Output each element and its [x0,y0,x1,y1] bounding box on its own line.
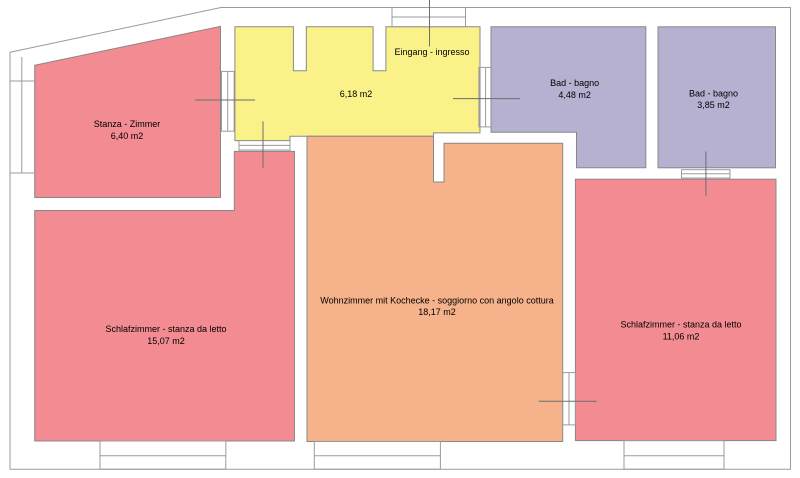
svg-text:Schlafzimmer - stanza da letto: Schlafzimmer - stanza da letto [620,320,741,330]
svg-text:15,07 m2: 15,07 m2 [147,336,185,346]
svg-text:6,40 m2: 6,40 m2 [111,131,144,141]
svg-text:Stanza - Zimmer: Stanza - Zimmer [94,119,161,129]
svg-text:Bad - bagno: Bad - bagno [550,78,599,88]
svg-text:Schlafzimmer - stanza da letto: Schlafzimmer - stanza da letto [105,324,226,334]
svg-text:Bad - bagno: Bad - bagno [689,89,738,99]
svg-text:Eingang - ingresso: Eingang - ingresso [394,47,469,57]
svg-text:3,85 m2: 3,85 m2 [697,100,730,110]
svg-text:11,06 m2: 11,06 m2 [663,332,700,342]
svg-text:18,17 m2: 18,17 m2 [418,307,456,317]
svg-text:4,48 m2: 4,48 m2 [558,90,591,100]
svg-text:Wohnzimmer mit Kochecke - sogg: Wohnzimmer mit Kochecke - soggiorno con … [320,296,553,306]
svg-text:6,18 m2: 6,18 m2 [340,89,373,99]
